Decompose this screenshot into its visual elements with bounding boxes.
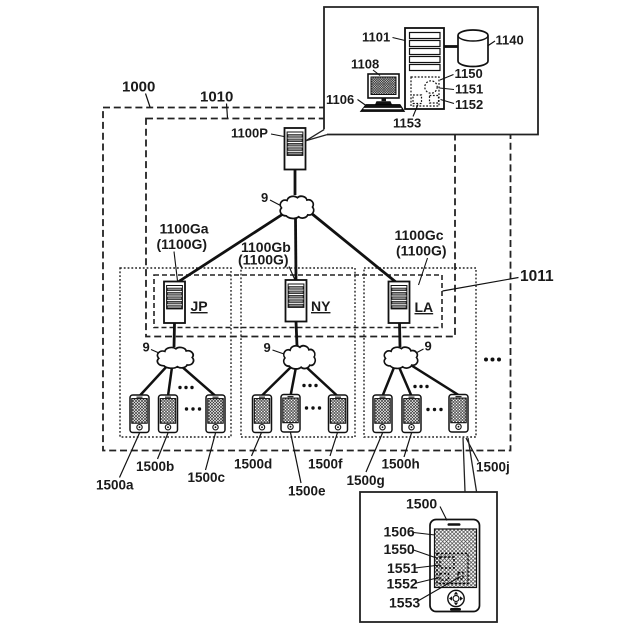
svg-text:1500e: 1500e: [288, 484, 326, 499]
svg-text:1552: 1552: [387, 576, 418, 592]
svg-text:NY: NY: [311, 298, 331, 314]
svg-text:1150: 1150: [455, 66, 483, 81]
svg-text:1550: 1550: [384, 541, 415, 557]
svg-text:1553: 1553: [389, 595, 420, 611]
svg-text:1500h: 1500h: [382, 457, 420, 472]
svg-text:1011: 1011: [520, 268, 554, 285]
svg-text:LA: LA: [415, 299, 434, 315]
svg-text:1500a: 1500a: [96, 478, 134, 493]
svg-text:1140: 1140: [496, 33, 524, 48]
svg-text:1500c: 1500c: [188, 470, 226, 485]
svg-text:1500g: 1500g: [347, 473, 385, 488]
svg-text:1500f: 1500f: [308, 457, 343, 472]
svg-text:1551: 1551: [387, 560, 418, 576]
svg-text:1010: 1010: [200, 89, 233, 106]
svg-text:1000: 1000: [122, 79, 155, 96]
svg-text:JP: JP: [191, 298, 208, 314]
svg-text:9: 9: [425, 339, 432, 354]
svg-text:1100P: 1100P: [231, 126, 268, 141]
svg-text:(1100G): (1100G): [396, 243, 447, 259]
svg-text:9: 9: [264, 340, 271, 355]
svg-text:(1100G): (1100G): [238, 252, 289, 268]
svg-text:1108: 1108: [351, 57, 379, 72]
svg-text:1100Gc: 1100Gc: [395, 227, 444, 243]
svg-text:1100Ga: 1100Ga: [160, 221, 209, 237]
svg-text:1500b: 1500b: [136, 459, 174, 474]
svg-text:9: 9: [261, 190, 268, 205]
svg-text:9: 9: [143, 340, 150, 355]
svg-text:1106: 1106: [326, 92, 354, 107]
svg-text:1152: 1152: [455, 97, 483, 112]
svg-text:(1100G): (1100G): [157, 236, 208, 252]
svg-text:1101: 1101: [362, 30, 390, 45]
svg-text:1500d: 1500d: [234, 457, 272, 472]
svg-text:1506: 1506: [384, 524, 415, 540]
svg-text:1500j: 1500j: [476, 460, 510, 475]
svg-text:1151: 1151: [455, 82, 483, 97]
svg-text:1153: 1153: [393, 116, 421, 131]
svg-text:1500: 1500: [406, 496, 437, 512]
